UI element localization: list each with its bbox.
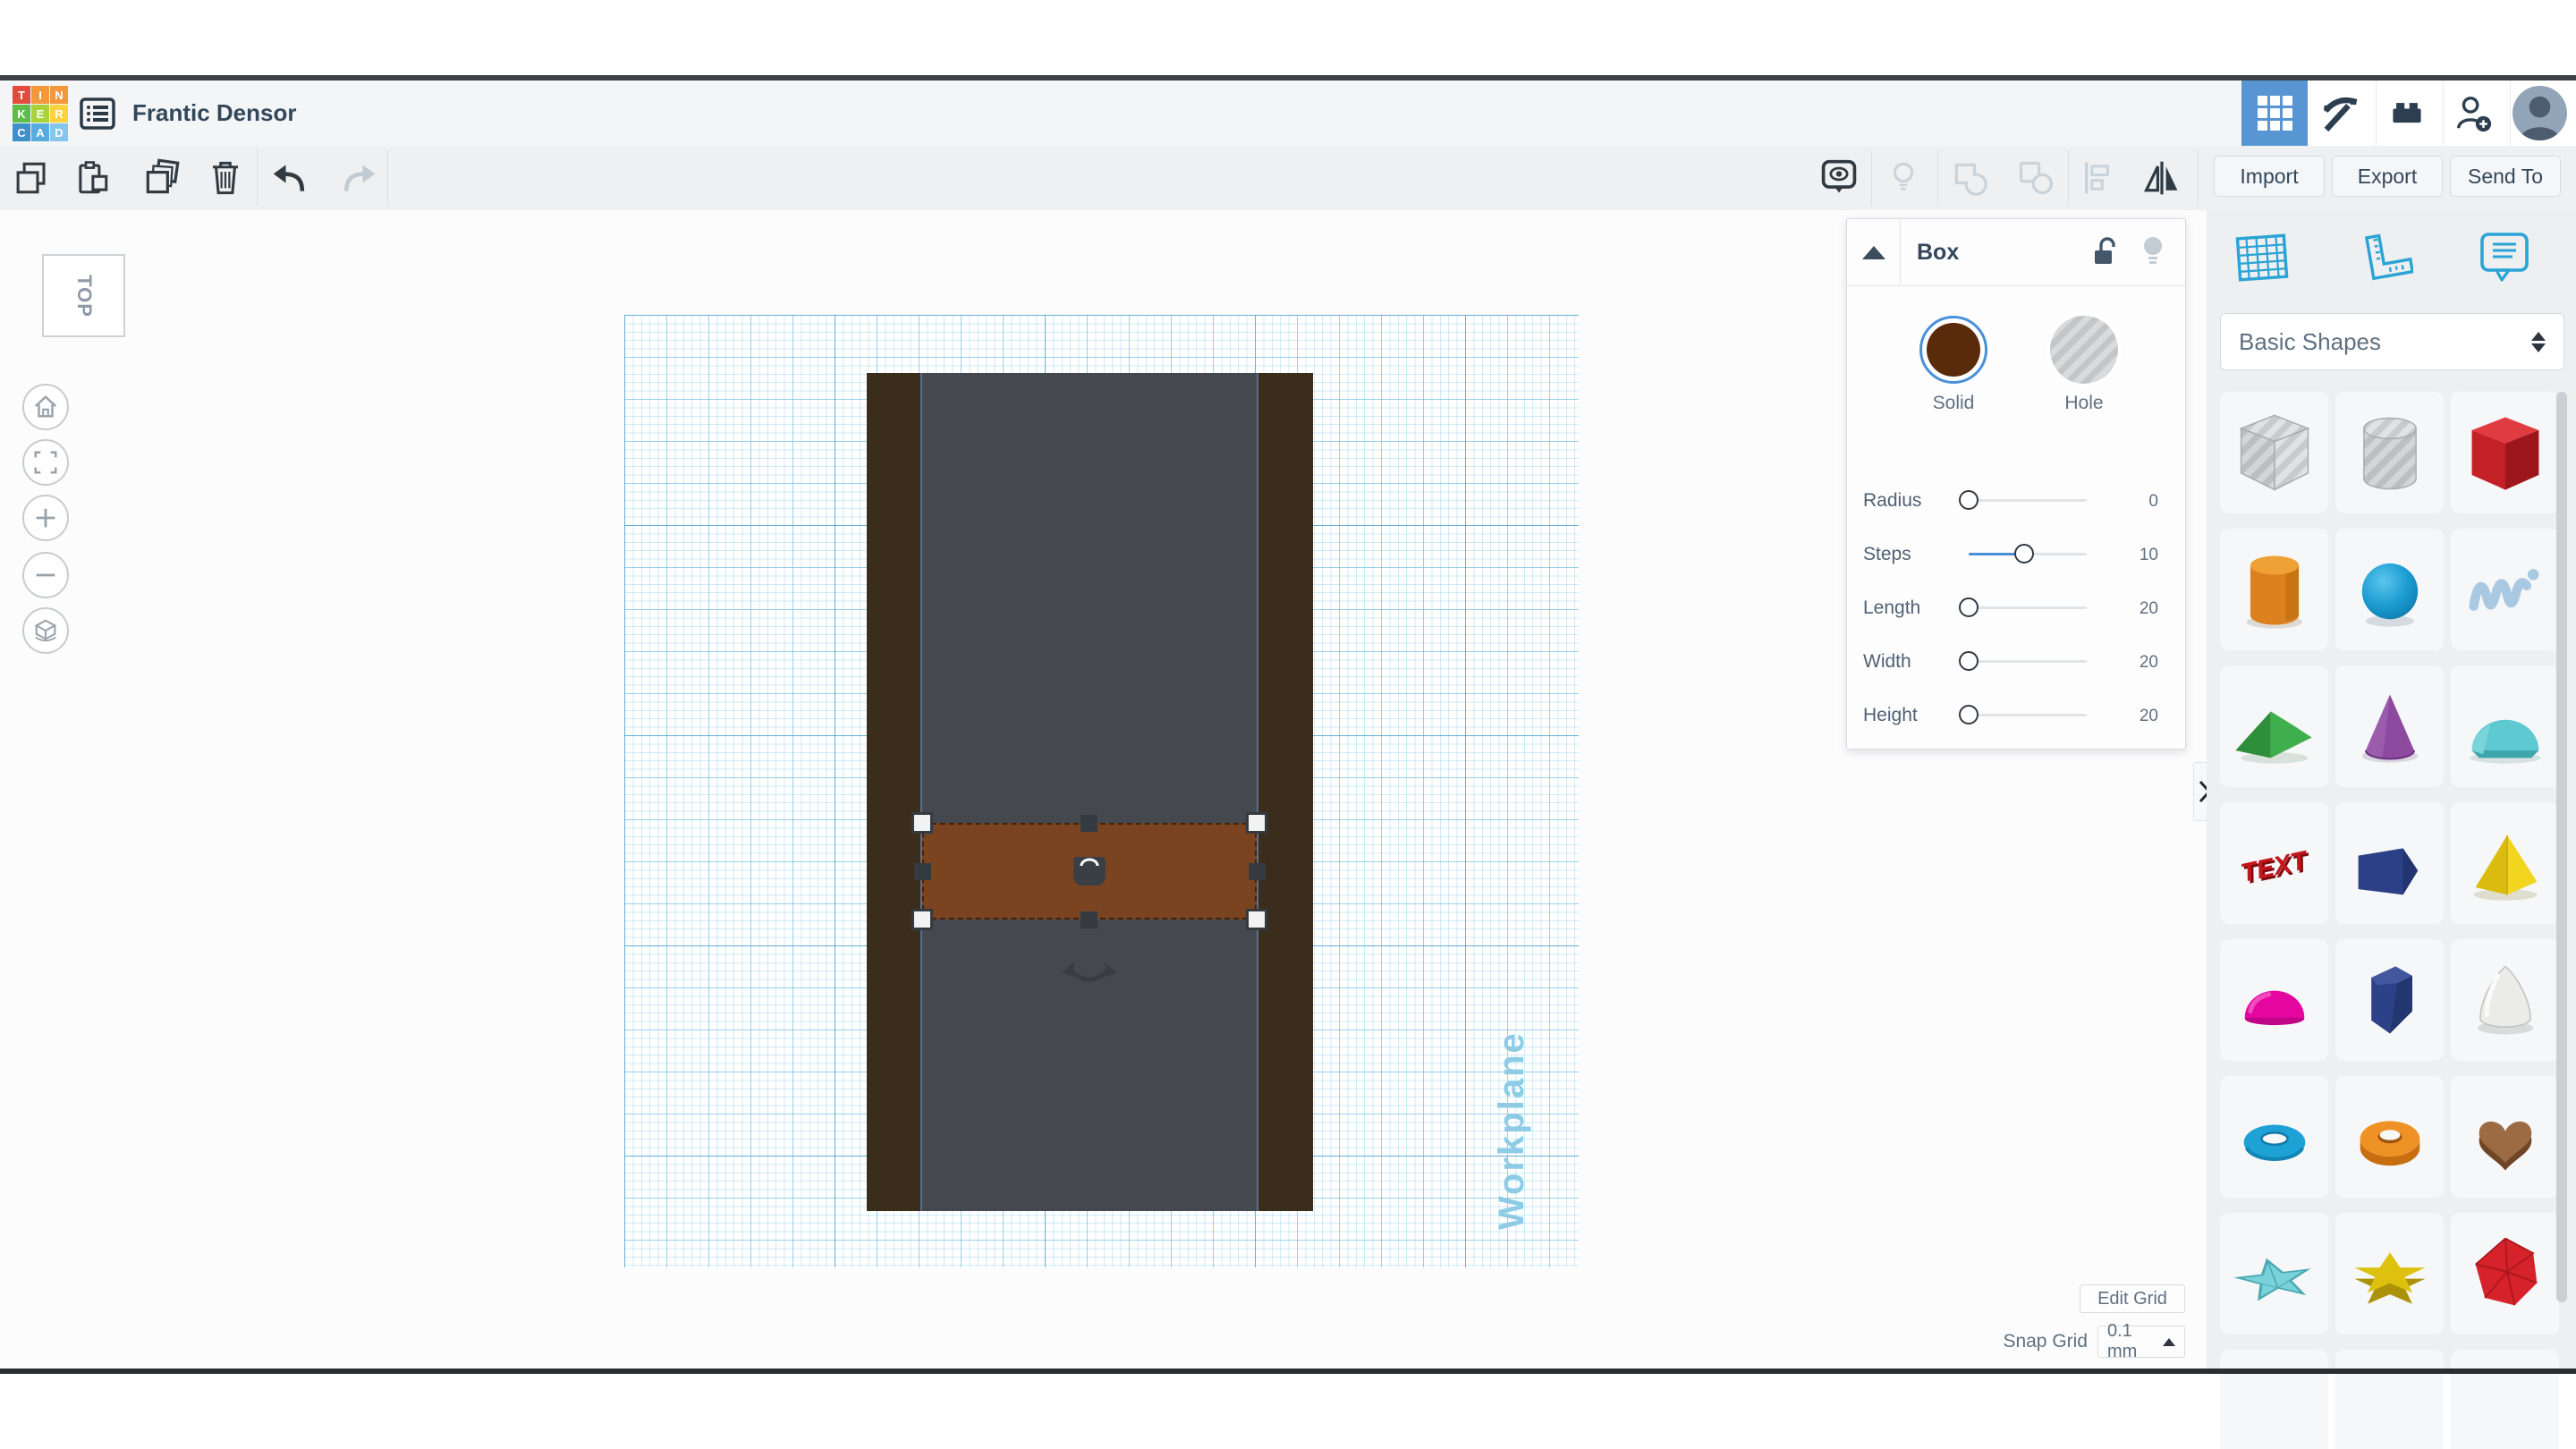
slider-track[interactable] — [1969, 714, 2087, 716]
hide-shape-button[interactable] — [2140, 235, 2165, 267]
rotate-handle[interactable] — [1060, 960, 1119, 996]
plus-icon — [32, 504, 59, 531]
shape-icosahedron[interactable] — [2451, 1213, 2559, 1335]
bricks-button[interactable] — [2386, 93, 2428, 134]
sidebar-scrollbar[interactable] — [2556, 392, 2567, 1302]
shape-inspector-panel: Box Solid Hole — [1846, 218, 2186, 750]
action-toolbar: Import Export Send To — [0, 146, 2576, 211]
hole-label: Hole — [2050, 393, 2118, 414]
lightbulb-icon — [1885, 159, 1922, 197]
invite-button[interactable] — [2453, 93, 2494, 134]
hole-swatch[interactable] — [2050, 316, 2118, 384]
polygon-prism-icon — [2343, 953, 2436, 1046]
fit-view-icon — [32, 449, 59, 476]
toolbar-divider — [2068, 150, 2069, 206]
design-menu-button[interactable] — [79, 95, 116, 132]
shape-category-dropdown[interactable]: Basic Shapes — [2220, 313, 2564, 370]
slider-track[interactable] — [1969, 499, 2087, 502]
viewport-canvas[interactable]: Workplane TOP — [0, 210, 2576, 1368]
shape-text[interactable]: TEXT TEXT — [2220, 802, 2328, 924]
light-toggle-button[interactable] — [1884, 158, 1923, 198]
toolbar-divider — [2198, 150, 2199, 206]
shape-cylinder-hole[interactable] — [2335, 392, 2444, 513]
torus-icon — [2228, 1090, 2321, 1183]
shape-torus[interactable] — [2220, 1076, 2328, 1198]
slider-row-radius: Radius 0 — [1847, 474, 2187, 528]
shape-tube[interactable] — [2335, 1076, 2444, 1198]
logo-tile: E — [31, 105, 49, 123]
shape-tile-partial[interactable] — [2451, 1350, 2559, 1449]
shape-tile-partial[interactable] — [2335, 1350, 2444, 1449]
half-sphere-icon — [2228, 953, 2321, 1046]
import-button[interactable]: Import — [2214, 156, 2325, 197]
notes-tool-icon — [2475, 230, 2534, 285]
cylinder-hole-icon — [2343, 406, 2436, 499]
shapes-sidebar: Basic Shapes — [2207, 210, 2576, 1368]
shape-scribble[interactable] — [2451, 529, 2559, 650]
shape-heart[interactable] — [2451, 1076, 2559, 1198]
scribble-icon — [2459, 543, 2552, 636]
redo-icon — [338, 158, 377, 198]
shape-star[interactable] — [2220, 1213, 2328, 1335]
shape-round-roof[interactable] — [2451, 665, 2559, 787]
shape-half-sphere[interactable] — [2220, 939, 2328, 1061]
group-button[interactable] — [1950, 158, 1989, 198]
shape-tile-partial[interactable] — [2220, 1350, 2328, 1449]
zoom-in-button[interactable] — [22, 495, 69, 541]
workplane-tool-button[interactable] — [2233, 228, 2292, 287]
model-right-rail[interactable] — [1258, 373, 1313, 1211]
scale-handle-right-mid[interactable] — [1249, 863, 1266, 880]
height-handle[interactable] — [1073, 857, 1106, 885]
slider-label: Radius — [1863, 490, 1921, 512]
mirror-flip-icon — [2142, 157, 2182, 199]
add-person-icon — [2453, 93, 2494, 134]
pickaxe-icon — [2319, 94, 2359, 133]
minecraft-button[interactable] — [2318, 93, 2360, 134]
shape-category-value: Basic Shapes — [2239, 328, 2381, 356]
icosahedron-icon — [2459, 1227, 2552, 1320]
redo-button[interactable] — [338, 158, 377, 198]
solid-label: Solid — [1919, 393, 1987, 414]
cone-icon — [2343, 680, 2436, 773]
logo-tile: C — [13, 123, 30, 141]
toolbar-divider — [1937, 150, 1938, 206]
logo-tile: R — [50, 105, 68, 123]
model-center-slab[interactable] — [920, 373, 1258, 1211]
workplane-label: Workplane — [1492, 926, 1532, 1230]
slider-row-length: Length 20 — [1847, 581, 2187, 635]
slider-knob[interactable] — [2014, 544, 2034, 563]
workplane-tool-icon — [2233, 230, 2292, 285]
slider-value: 20 — [2115, 707, 2158, 726]
unlocked-padlock-icon — [2092, 237, 2119, 267]
slider-track[interactable] — [1969, 660, 2087, 663]
show-all-button[interactable] — [1819, 158, 1859, 198]
slider-value: 20 — [2115, 653, 2158, 673]
duplicate-button[interactable] — [141, 158, 181, 198]
edit-grid-button[interactable]: Edit Grid — [2080, 1284, 2185, 1313]
duplicate-icon — [141, 158, 181, 198]
view-cube-label: TOP — [72, 275, 95, 318]
scale-handle-left-mid[interactable] — [914, 863, 931, 880]
home-view-button[interactable] — [22, 384, 69, 430]
scale-handle-top-right[interactable] — [1246, 812, 1267, 834]
lock-button[interactable] — [2092, 237, 2119, 267]
tube-icon — [2343, 1090, 2436, 1183]
minus-icon — [32, 562, 59, 589]
paraboloid-icon — [2459, 953, 2552, 1046]
slider-row-height: Height 20 — [1847, 689, 2187, 742]
slider-knob[interactable] — [1959, 490, 1979, 510]
header-divider — [2443, 80, 2444, 146]
delete-button[interactable] — [206, 158, 245, 198]
scale-handle-bottom-left[interactable] — [911, 909, 933, 930]
header-divider — [2376, 80, 2377, 146]
view-cube[interactable]: TOP — [42, 254, 125, 337]
ungroup-icon — [2016, 158, 2055, 198]
profile-avatar[interactable] — [2512, 85, 2568, 141]
dashboard-grid-icon — [2258, 96, 2292, 131]
inspector-collapse-button[interactable] — [1847, 219, 1901, 285]
pyramid-icon — [2459, 817, 2552, 910]
zoom-out-button[interactable] — [22, 552, 69, 598]
shape-paraboloid[interactable] — [2451, 939, 2559, 1061]
scale-handle-top-mid[interactable] — [1080, 815, 1097, 832]
scale-handle-bottom-mid[interactable] — [1080, 911, 1097, 928]
star-icon — [2228, 1227, 2321, 1320]
undo-button[interactable] — [271, 158, 310, 198]
slider-knob[interactable] — [1959, 597, 1979, 617]
snap-grid-label: Snap Grid — [1993, 1331, 2088, 1352]
slider-track[interactable] — [1969, 606, 2087, 609]
thick-star-icon — [2343, 1227, 2436, 1320]
solid-color-circle — [1927, 323, 1980, 377]
mirror-button[interactable] — [2142, 158, 2182, 198]
shape-box[interactable] — [2451, 392, 2559, 513]
copy-button[interactable] — [12, 158, 51, 198]
list-menu-icon — [79, 95, 116, 132]
triangle-up-icon — [1862, 246, 1885, 259]
perspective-toggle-button[interactable] — [22, 607, 69, 654]
box-hole-icon — [2228, 406, 2321, 499]
slider-label: Steps — [1863, 544, 1911, 565]
solid-swatch[interactable] — [1919, 316, 1987, 384]
shape-box-hole[interactable] — [2220, 392, 2328, 513]
scale-handle-bottom-right[interactable] — [1246, 909, 1267, 930]
group-icon — [1950, 158, 1989, 198]
header-bar: T I N K E R C A D Frantic Densor — [0, 80, 2576, 147]
model-left-rail[interactable] — [867, 373, 920, 1211]
logo-tile: K — [13, 105, 30, 123]
slider-label: Width — [1863, 651, 1911, 673]
tinkercad-app: T I N K E R C A D Frantic Densor — [0, 0, 2576, 1449]
shape-sphere[interactable] — [2335, 529, 2444, 650]
paste-icon — [73, 159, 111, 197]
logo-tile: T — [13, 86, 30, 104]
logo-tile: N — [50, 86, 68, 104]
logo-tile: A — [31, 123, 49, 141]
roof-icon — [2228, 680, 2321, 773]
shape-polygon[interactable] — [2335, 939, 2444, 1061]
spinner-arrows-icon — [2531, 332, 2546, 352]
dropdown-arrow-icon — [2163, 1338, 2175, 1346]
shape-wedge[interactable] — [2335, 802, 2444, 924]
snap-grid-dropdown[interactable]: 0.1 mm — [2097, 1326, 2185, 1358]
show-all-eye-icon — [1819, 158, 1859, 198]
shape-pyramid[interactable] — [2451, 802, 2559, 924]
bulb-icon — [2140, 235, 2165, 267]
slider-row-width: Width 20 — [1847, 635, 2187, 689]
slider-label: Height — [1863, 705, 1918, 726]
round-roof-icon — [2459, 680, 2552, 773]
slider-knob[interactable] — [1959, 705, 1979, 724]
inspector-header: Box — [1847, 219, 2185, 286]
text-icon: TEXT TEXT — [2228, 817, 2321, 910]
home-icon — [32, 394, 59, 420]
avatar-icon — [2512, 85, 2568, 141]
align-button[interactable] — [2078, 158, 2117, 198]
ungroup-button[interactable] — [2016, 158, 2055, 198]
slider-value: 10 — [2115, 546, 2158, 565]
ruler-tool-icon — [2354, 230, 2413, 285]
dashboard-tab[interactable] — [2241, 80, 2308, 146]
send-to-button[interactable]: Send To — [2450, 156, 2561, 197]
toolbar-divider — [387, 150, 388, 206]
logo-tile: I — [31, 86, 49, 104]
snap-grid-value: 0.1 mm — [2107, 1321, 2163, 1362]
toolbar-divider — [1871, 150, 1872, 206]
design-title[interactable]: Frantic Densor — [132, 80, 297, 146]
height-handle-arc-icon — [1079, 857, 1100, 869]
slider-value: 20 — [2115, 599, 2158, 619]
shape-cylinder[interactable] — [2220, 529, 2328, 650]
slider-value: 0 — [2115, 492, 2158, 512]
heart-icon — [2459, 1090, 2552, 1183]
export-button[interactable]: Export — [2332, 156, 2443, 197]
ruler-tool-button[interactable] — [2354, 228, 2413, 287]
lego-brick-icon — [2387, 94, 2427, 133]
notes-tool-button[interactable] — [2475, 228, 2534, 287]
perspective-cube-icon — [32, 617, 59, 644]
scale-handle-top-left[interactable] — [911, 812, 933, 834]
slider-knob[interactable] — [1959, 651, 1979, 671]
sphere-icon — [2343, 543, 2436, 636]
logo-tile: D — [50, 123, 68, 141]
inspector-title: Box — [1917, 219, 1959, 285]
fit-view-button[interactable] — [22, 439, 69, 486]
shape-thick-star[interactable] — [2335, 1213, 2444, 1335]
toolbar-divider — [257, 150, 258, 206]
shape-roof[interactable] — [2220, 665, 2328, 787]
cylinder-icon — [2228, 543, 2321, 636]
paste-button[interactable] — [72, 158, 112, 198]
window-border-bottom — [0, 1368, 2576, 1374]
slider-label: Length — [1863, 597, 1920, 619]
header-divider — [2510, 80, 2511, 146]
undo-icon — [271, 158, 310, 198]
shape-cone[interactable] — [2335, 665, 2444, 787]
align-icon — [2079, 159, 2116, 197]
copy-icon — [13, 159, 50, 197]
shape-gallery: TEXT TEXT — [2220, 392, 2559, 1449]
box-icon — [2459, 406, 2552, 499]
tinkercad-logo[interactable]: T I N K E R C A D — [13, 86, 68, 141]
trash-icon — [207, 159, 244, 197]
wedge-icon — [2343, 817, 2436, 910]
slider-row-steps: Steps 10 — [1847, 528, 2187, 581]
